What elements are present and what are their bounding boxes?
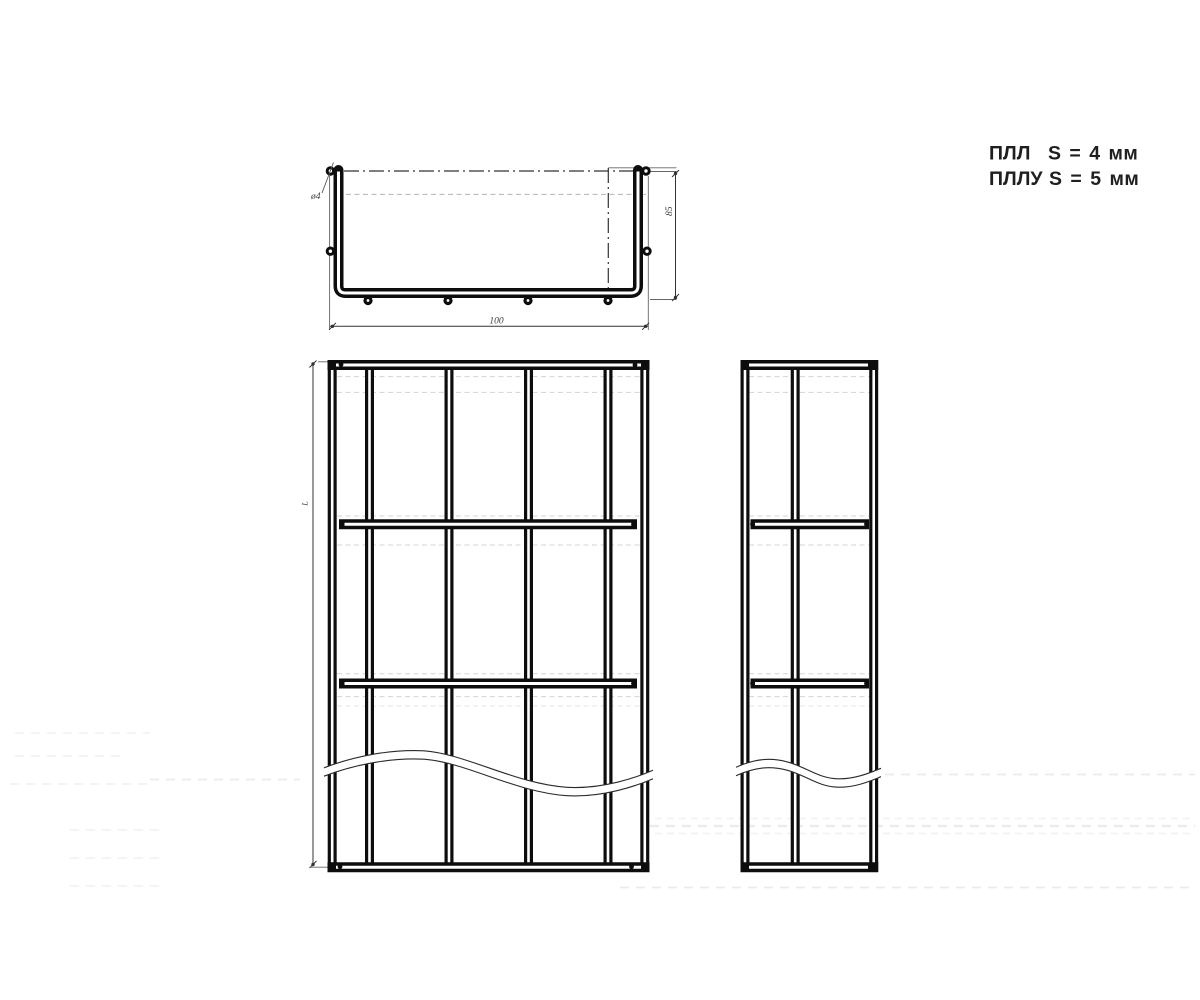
svg-text:ПЛЛ: ПЛЛ: [989, 143, 1030, 165]
svg-text:L: L: [301, 501, 310, 507]
svg-text:S = 5 мм: S = 5 мм: [1049, 168, 1139, 190]
svg-text:85: 85: [665, 206, 675, 216]
svg-text:ПЛЛУ: ПЛЛУ: [989, 168, 1043, 190]
svg-text:ø4: ø4: [310, 192, 321, 202]
svg-text:S = 4 мм: S = 4 мм: [1048, 143, 1138, 165]
svg-text:100: 100: [489, 317, 504, 327]
